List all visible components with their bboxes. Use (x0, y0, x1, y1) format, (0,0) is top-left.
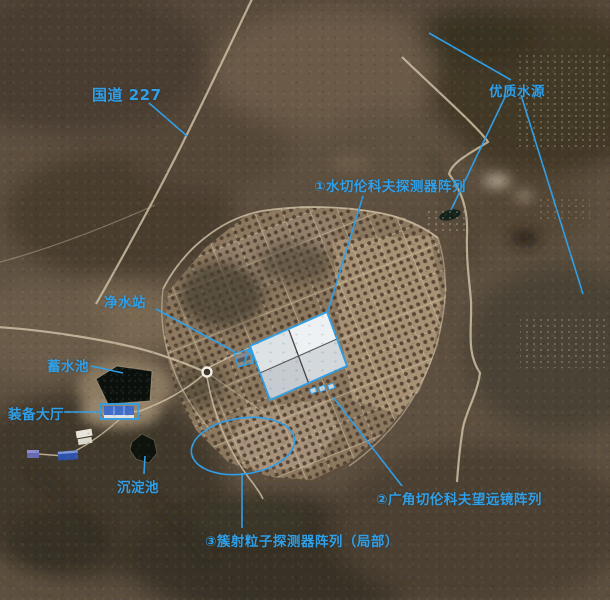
leader-sedimentation (144, 456, 145, 474)
round-tank-structure (203, 368, 212, 377)
satellite-image: 国道 227 优质水源 ①水切伦科夫探测器阵列 净水站 蓄水池 装备大厅 沉淀池… (0, 0, 610, 600)
terrain-canvas (0, 0, 610, 600)
equipment-hall-building (101, 404, 138, 419)
small-purple-shed-roof (27, 450, 39, 453)
